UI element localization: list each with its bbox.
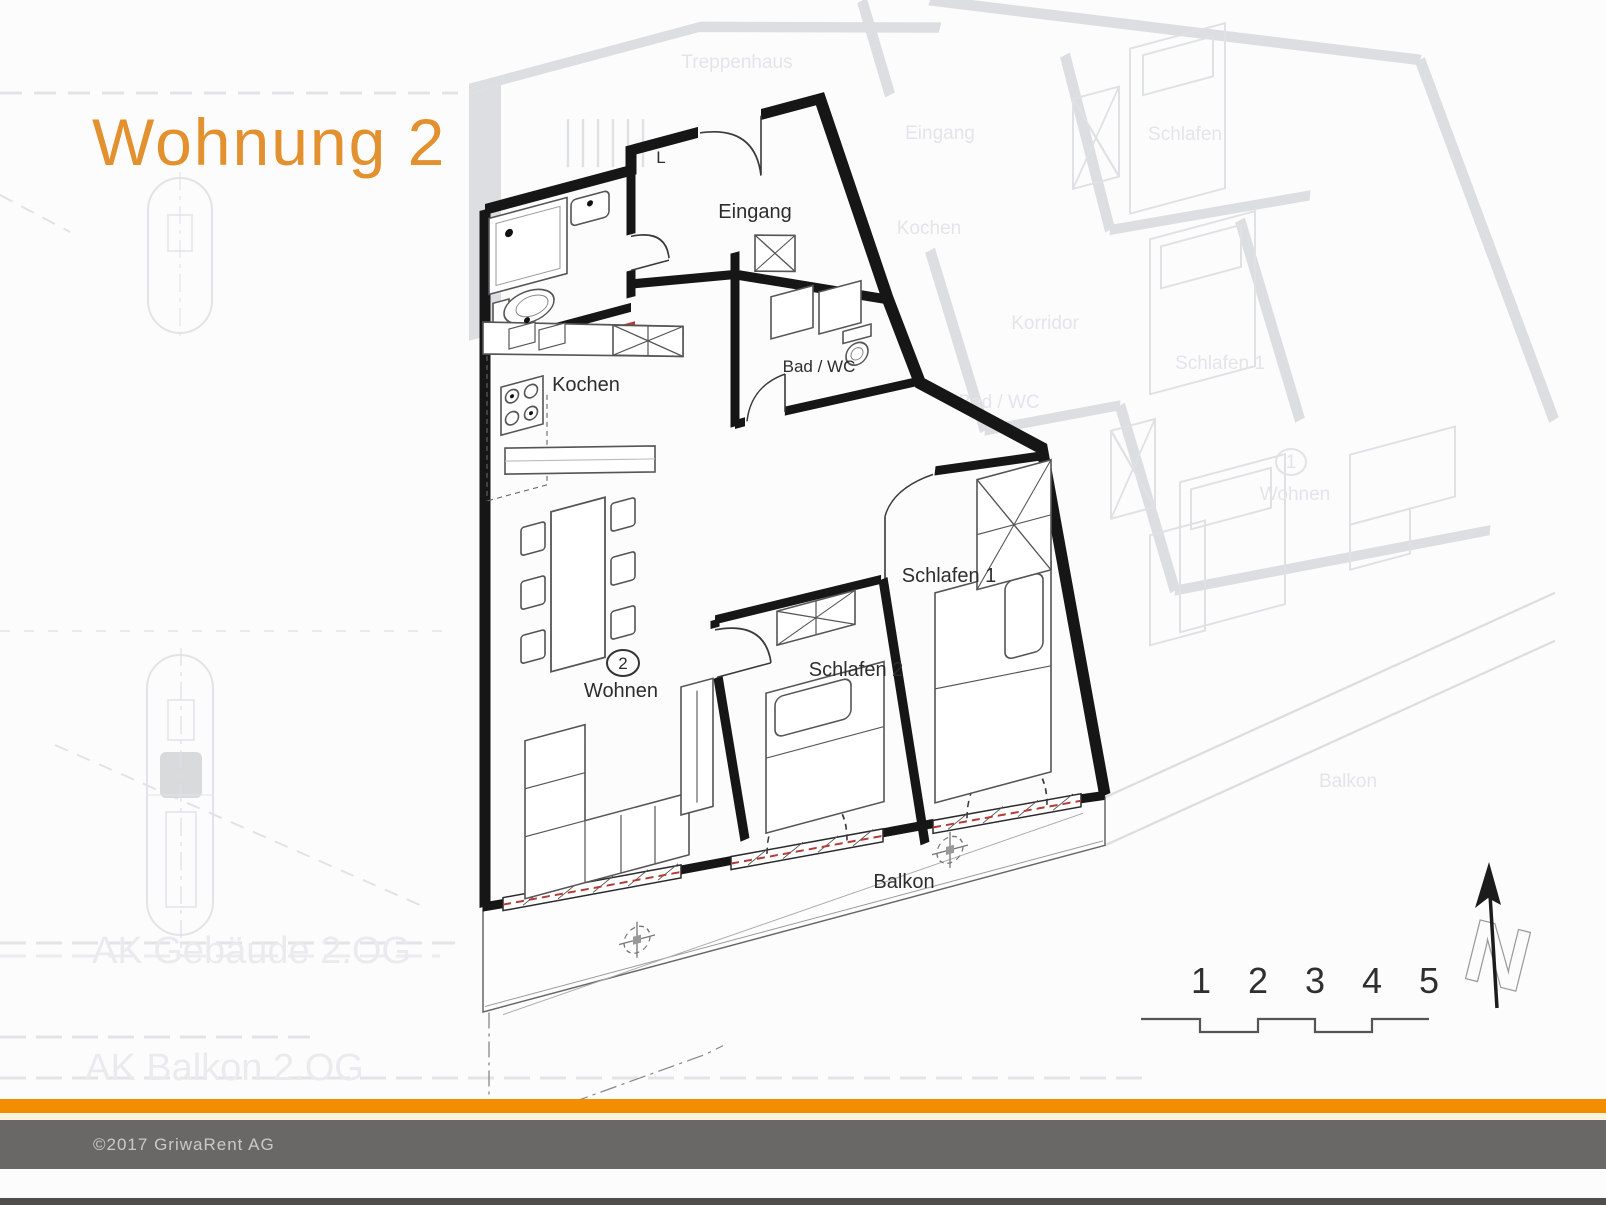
label-schlafen2: Schlafen 2 [809,659,904,681]
label-kochen: Kochen [552,374,620,396]
scale-4: 4 [1362,960,1382,1001]
scale-bar: 1 2 3 4 5 [1141,960,1439,1032]
bottom-edge-bar [0,1198,1606,1205]
label-bad-wc: Bad / WC [783,357,856,376]
ak-gebaeude-label: AK Gebäude 2.OG [92,930,411,972]
bg-bed [1130,23,1225,213]
bathroom-door [631,226,669,270]
bed-schlafen2 [766,662,884,834]
main-plan [483,22,1105,1134]
north-letter: N [1456,902,1539,1010]
hall-wardrobe [755,224,795,282]
page-title: Wohnung 2 [92,104,446,180]
slide: Treppenhaus Eingang Kochen Korridor Bad … [0,0,1606,1205]
scale-5: 5 [1419,960,1439,1001]
label-balkon: Balkon [873,871,934,893]
washbasin [571,190,609,226]
bg-label-living-number: 1 [1286,452,1297,473]
bg-bed [1180,454,1285,632]
accent-bar [0,1099,1606,1113]
bg-label-wohnen: Wohnen [1260,484,1330,505]
label-eingang: Eingang [718,201,791,223]
bg-balcony [1105,593,1555,846]
bedroom1-door [885,474,933,578]
label-schlafen1: Schlafen 1 [902,565,997,587]
sideboard [681,678,713,815]
north-arrow: N [1456,862,1539,1010]
elevator-symbol-bottom [147,648,214,955]
copyright-text: ©2017 GriwaRent AG [93,1120,275,1169]
bg-label-schlafen1: Schlafen 1 [1175,353,1265,374]
bg-label-balkon: Balkon [1319,771,1377,792]
north-arrow-head [1475,862,1501,908]
scale-bar-numbers: 1 2 3 4 5 [1191,960,1439,1001]
bg-label-korridor: Korridor [1011,313,1079,334]
scale-1: 1 [1191,960,1211,1001]
bg-label-kochen: Kochen [897,218,961,239]
stove [501,376,543,435]
ak-balkon-label: AK Balkon 2.OG [85,1047,364,1089]
footer-bar: ©2017 GriwaRent AG [0,1120,1606,1169]
furniture [483,68,1051,924]
bedroom2-door [715,615,771,678]
accent-bar-highlight [0,1113,1606,1120]
label-living-number: 2 [618,654,627,673]
bg-label-treppenhaus: Treppenhaus [681,52,792,73]
scale-3: 3 [1305,960,1325,1001]
badwc-door [747,374,785,422]
bed-schlafen1 [935,562,1051,803]
scale-2: 2 [1248,960,1268,1001]
bg-label-eingang: Eingang [905,123,975,144]
entrance-door [700,116,761,192]
elevator-symbol-top [148,172,212,340]
scale-bar-line [1141,1019,1429,1032]
bg-label-schlafen: Schlafen [1148,124,1222,145]
label-vent: L [656,148,665,167]
label-wohnen: Wohnen [584,680,658,702]
floorplan-canvas: Treppenhaus Eingang Kochen Korridor Bad … [0,0,1606,1205]
